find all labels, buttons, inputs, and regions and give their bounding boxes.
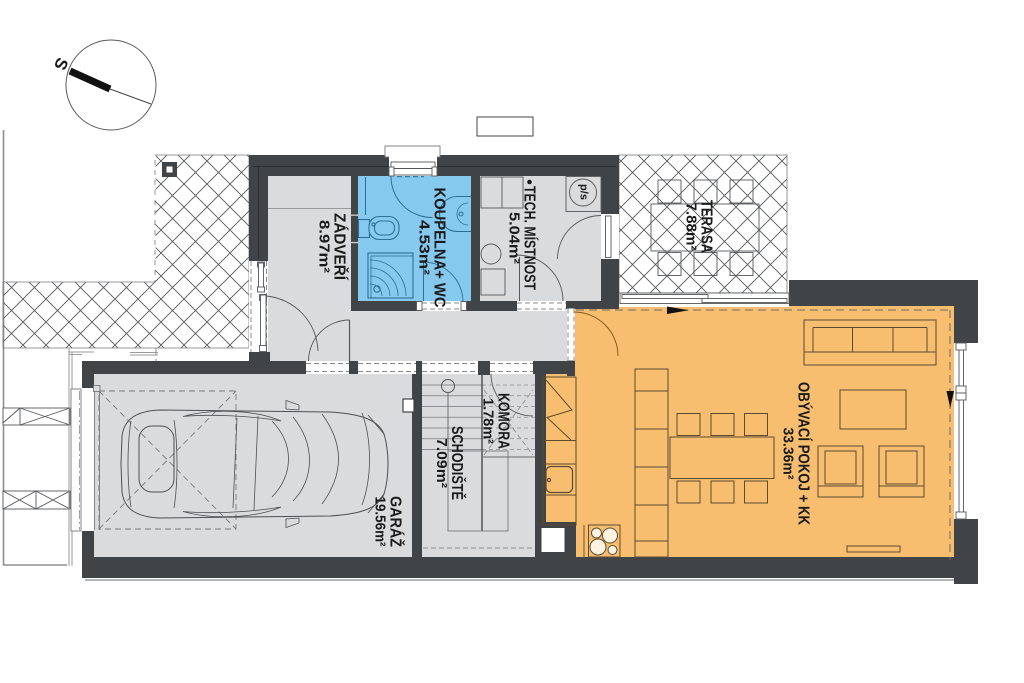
svg-text:TERASA7.88m²: TERASA7.88m² (683, 200, 715, 253)
svg-text:ZÁDVEŘÍ8.97m²: ZÁDVEŘÍ8.97m² (316, 213, 350, 281)
svg-text:p/s: p/s (578, 184, 590, 200)
svg-text:KOMORA1.78m²: KOMORA1.78m² (480, 393, 512, 449)
svg-text:GARÁŽ19.56m²: GARÁŽ19.56m² (372, 496, 406, 547)
svg-text:S: S (50, 55, 72, 73)
